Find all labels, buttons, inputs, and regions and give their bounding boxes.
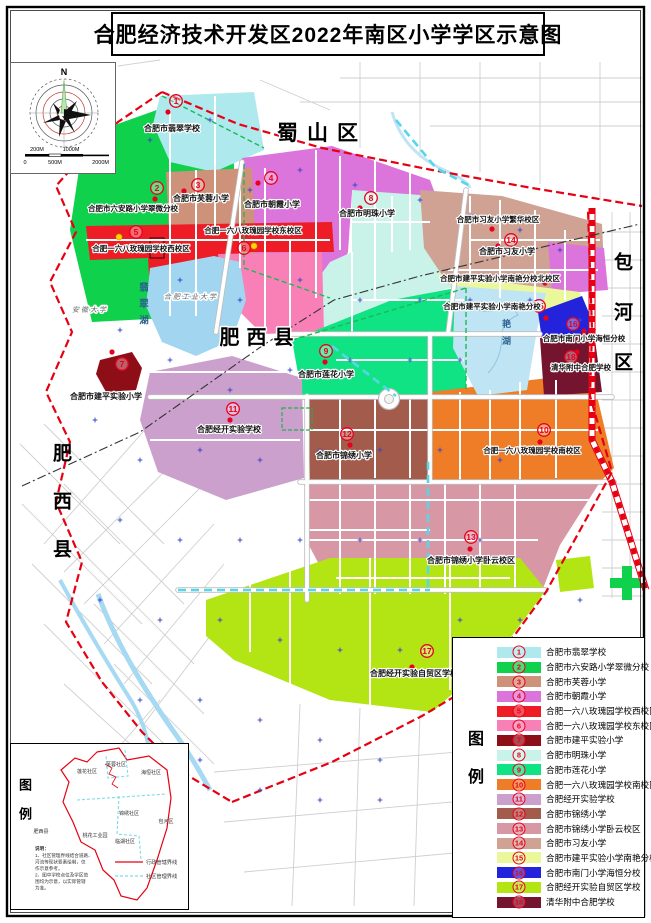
svg-text:6: 6 (242, 243, 247, 253)
legend-color-swatch: 12 (497, 808, 541, 819)
legend-item: 3合肥市芙蓉小学 (497, 674, 651, 689)
legend-color-swatch: 2 (497, 662, 541, 673)
legend-item: 4合肥市朝霞小学 (497, 689, 651, 704)
map-school-number-10: 10 (538, 424, 551, 437)
label-school-6: 合肥一六八玫瑰园学校东校区 (204, 225, 302, 235)
legend-item-number: 13 (513, 822, 526, 835)
road-marker (578, 598, 583, 603)
label-shushan-district: 蜀山区 (277, 122, 367, 145)
road-marker (93, 418, 98, 423)
legend-item-number: 6 (513, 719, 526, 732)
label-school-13: 合肥市锦绣小学卧云校区 (426, 555, 515, 565)
compass-rose: N 200M 1000M 0 500M 2000M (11, 63, 115, 173)
compass-box: N 200M 1000M 0 500M 2000M (10, 62, 116, 174)
map-school-number-8: 8 (365, 192, 378, 205)
legend-color-swatch: 18 (497, 897, 541, 908)
legend-color-swatch: 1 (497, 647, 541, 658)
school-dot-yellow (251, 243, 257, 249)
legend-item-number: 9 (513, 763, 526, 776)
label-school-15b: 合肥市建平实验小学南艳分校北校区 (440, 273, 560, 283)
map-school-number-13: 13 (465, 531, 478, 544)
legend-item: 14合肥市习友小学 (497, 836, 651, 851)
map-school-number-6: 6 (238, 242, 251, 255)
legend-item-number: 8 (513, 749, 526, 762)
map-page: 123456789101112131415161718 合肥市翡翠学校 合肥市六… (0, 0, 651, 923)
inset-label-community: 莲花社区 (77, 768, 97, 775)
svg-text:2: 2 (155, 183, 160, 193)
road-marker (138, 458, 143, 463)
inset-label-community: 临湖社区 (115, 838, 135, 845)
label-feicui-lake: 翡翠湖 (135, 282, 149, 332)
legend-item-number: 17 (513, 881, 526, 894)
label-hfut: 合肥工业大学 (164, 293, 218, 301)
legend-item-label: 合肥经开实验自贸区学校 (546, 881, 641, 893)
map-school-number-12: 12 (341, 428, 354, 441)
label-baohe-district-v: 包河区 (608, 252, 635, 402)
map-school-number-17: 17 (421, 645, 434, 658)
map-school-number-11: 11 (227, 403, 240, 416)
svg-text:18: 18 (566, 352, 576, 362)
road-marker (198, 758, 203, 763)
legend-color-swatch: 17 (497, 882, 541, 893)
green-cross-park (610, 578, 644, 588)
legend-item-label: 合肥一六八玫瑰园学校东校区 (546, 720, 651, 732)
svg-text:14: 14 (506, 235, 516, 245)
legend-item-label: 合肥市莲花小学 (546, 764, 606, 776)
inset-label-community: 海恒社区 (141, 769, 161, 776)
legend-item: 18清华附中合肥学校 (497, 895, 651, 910)
legend-item: 9合肥市莲花小学 (497, 763, 651, 778)
label-school-18: 清华附中合肥学校 (551, 362, 611, 372)
label-school-1: 合肥市翡翠学校 (143, 123, 201, 133)
inset-label-neighbor: 肥西县 (33, 829, 48, 835)
legend-color-swatch: 4 (497, 691, 541, 702)
legend-item: 2合肥市六安路小学翠微分校 (497, 660, 651, 675)
school-region-4b (548, 242, 608, 294)
legend-item: 5合肥一六八玫瑰园学校西校区 (497, 704, 651, 719)
svg-text:5: 5 (134, 227, 139, 237)
road-marker (318, 738, 323, 743)
legend-color-swatch: 7 (497, 735, 541, 746)
legend-item: 13合肥市锦绣小学卧云校区 (497, 821, 651, 836)
inset-map: 莲花社区 芙蓉社区 海恒社区 锦绣社区 临湖社区 桃花工业园 肥西县 包河区 说… (11, 744, 188, 909)
legend-header: 图例 (461, 730, 485, 806)
school-dot-yellow (116, 234, 122, 240)
inset-note-line: 1、社区管理界线结合道路、 (35, 852, 93, 859)
label-school-8: 合肥市明珠小学 (338, 208, 395, 218)
svg-text:8: 8 (369, 193, 374, 203)
inset-line-legend-label: 行政管辖界线 (146, 858, 177, 866)
road-marker (178, 538, 183, 543)
svg-text:16: 16 (568, 319, 578, 329)
road-marker (318, 798, 323, 803)
legend-color-swatch: 8 (497, 750, 541, 761)
road-marker (258, 718, 263, 723)
scale-label: 0 (23, 160, 26, 166)
label-school-9: 合肥市莲花小学 (297, 369, 354, 379)
legend-item: 10合肥一六八玫瑰园学校南校区 (497, 777, 651, 792)
map-school-number-5: 5 (130, 226, 143, 239)
legend-color-swatch: 16 (497, 867, 541, 878)
label-school-14: 合肥市习友小学 (478, 246, 535, 256)
svg-text:7: 7 (120, 359, 125, 369)
map-school-number-9: 9 (320, 345, 333, 358)
inset-line-legend-label: 社区管理界线 (146, 872, 177, 880)
map-title-box: 合肥经济技术开发区2022年南区小学学区示意图 (111, 12, 545, 56)
map-school-number-16: 16 (567, 318, 580, 331)
legend-panel: 图例 1合肥市翡翠学校2合肥市六安路小学翠微分校3合肥市芙蓉小学4合肥市朝霞小学… (452, 637, 645, 918)
legend-item: 8合肥市明珠小学 (497, 748, 651, 763)
legend-item-label: 合肥一六八玫瑰园学校西校区 (546, 705, 651, 717)
legend-item-number: 18 (513, 896, 526, 909)
legend-item-label: 合肥市翡翠学校 (546, 646, 606, 658)
road-marker (118, 518, 123, 523)
legend-item-number: 4 (513, 690, 526, 703)
legend-items: 1合肥市翡翠学校2合肥市六安路小学翠微分校3合肥市芙蓉小学4合肥市朝霞小学5合肥… (497, 645, 651, 909)
inset-note-line: 2、图中学校点位及学区范 (35, 872, 88, 879)
label-school-14b: 合肥市习友小学繁华校区 (457, 214, 540, 224)
legend-item-label: 合肥市锦绣小学 (546, 808, 606, 820)
legend-item-number: 14 (513, 837, 526, 850)
legend-item-number: 1 (513, 646, 526, 659)
road-marker (198, 698, 203, 703)
inset-label-neighbor: 包河区 (158, 818, 173, 825)
road-marker (118, 328, 123, 333)
legend-item-number: 5 (513, 705, 526, 718)
scale-bar: 200M 1000M 0 500M 2000M (23, 147, 109, 166)
label-school-3: 合肥市芙蓉小学 (172, 193, 229, 203)
legend-item-number: 7 (513, 734, 526, 747)
inset-header: 图例 (15, 778, 34, 836)
legend-color-swatch: 15 (497, 852, 541, 863)
legend-item-label: 合肥市建平实验小学南艳分校 (546, 852, 651, 864)
legend-item-label: 合肥一六八玫瑰园学校南校区 (546, 779, 651, 791)
legend-item: 1合肥市翡翠学校 (497, 645, 651, 660)
label-school-15: 合肥市建平实验小学南艳分校 (443, 301, 541, 311)
label-school-17: 合肥经开实验自贸区学校 (369, 668, 459, 678)
inset-note-line: 河流等现状要素绘制，仅 (35, 859, 86, 866)
map-school-number-1: 1 (170, 95, 183, 108)
road-marker (158, 618, 163, 623)
svg-text:11: 11 (229, 404, 238, 414)
legend-color-swatch: 5 (497, 706, 541, 717)
legend-color-swatch: 14 (497, 838, 541, 849)
scale-label: 200M (30, 147, 44, 153)
svg-text:12: 12 (342, 429, 352, 439)
label-school-5: 合肥一六八玫瑰园学校西校区 (92, 243, 190, 253)
inset-panel: 图例 莲花社区 芙蓉社区 海恒社区 锦绣社区 临湖社区 桃花工业园 肥西县 包河… (10, 743, 189, 910)
inset-notes-title: 说明： (35, 845, 49, 852)
legend-color-swatch: 10 (497, 779, 541, 790)
scale-label: 1000M (63, 147, 80, 153)
svg-text:10: 10 (539, 425, 549, 435)
map-school-number-7: 7 (116, 358, 129, 371)
page-title: 合肥经济技术开发区2022年南区小学学区示意图 (94, 19, 563, 49)
legend-item-number: 11 (513, 793, 526, 806)
road-marker (298, 538, 303, 543)
legend-color-swatch: 3 (497, 676, 541, 687)
inset-notes: 说明： 1、社区管理界线结合道路、 河流等现状要素绘制，仅 作示意参考。 2、图… (35, 845, 93, 892)
legend-item-label: 合肥市六安路小学翠微分校 (546, 661, 649, 673)
legend-item: 6合肥一六八玫瑰园学校东校区 (497, 718, 651, 733)
scale-label: 2000M (92, 160, 109, 166)
svg-text:1: 1 (174, 96, 179, 106)
legend-color-swatch: 6 (497, 720, 541, 731)
legend-item-number: 3 (513, 675, 526, 688)
legend-item-number: 10 (513, 778, 526, 791)
legend-item-number: 2 (513, 661, 526, 674)
label-anhui-university: 安徽大学 (72, 306, 108, 314)
map-school-number-14: 14 (505, 234, 518, 247)
scale-label: 500M (48, 160, 62, 166)
legend-color-swatch: 11 (497, 794, 541, 805)
label-school-11: 合肥经开实验学校 (196, 424, 262, 434)
map-school-number-4: 4 (265, 172, 278, 185)
legend-item-number: 16 (513, 866, 526, 879)
legend-item-label: 合肥市锦绣小学卧云校区 (546, 823, 641, 835)
legend-item: 17合肥经开实验自贸区学校 (497, 880, 651, 895)
legend-color-swatch: 9 (497, 764, 541, 775)
legend-item-label: 合肥市习友小学 (546, 837, 606, 849)
svg-text:9: 9 (324, 346, 329, 356)
road-marker (138, 698, 143, 703)
legend-item: 11合肥经开实验学校 (497, 792, 651, 807)
svg-text:4: 4 (269, 173, 274, 183)
legend-item-label: 合肥市建平实验小学 (546, 734, 623, 746)
legend-item-number: 12 (513, 807, 526, 820)
roundabout (379, 389, 400, 410)
label-feixi-county-v: 肥西县 (47, 443, 74, 587)
legend-item: 12合肥市锦绣小学 (497, 807, 651, 822)
label-school-7: 合肥市建平实验小学 (69, 391, 142, 401)
road-marker (378, 798, 383, 803)
compass-north-label: N (61, 67, 68, 77)
legend-item-label: 合肥市南门小学海恒分校 (546, 867, 641, 879)
legend-item: 15合肥市建平实验小学南艳分校 (497, 851, 651, 866)
label-school-10: 合肥一六八玫瑰园学校南校区 (483, 445, 581, 455)
map-school-number-2: 2 (151, 182, 164, 195)
legend-item-label: 合肥经开实验学校 (546, 793, 615, 805)
svg-text:17: 17 (422, 646, 432, 656)
legend-item: 7合肥市建平实验小学 (497, 733, 651, 748)
legend-item-label: 合肥市芙蓉小学 (546, 676, 606, 688)
svg-text:3: 3 (196, 180, 201, 190)
label-school-4: 合肥市朝霞小学 (243, 199, 300, 209)
legend-item-label: 合肥市明珠小学 (546, 749, 606, 761)
inset-label-community: 锦绣社区 (119, 810, 139, 817)
legend-item-number: 15 (513, 851, 526, 864)
label-school-2: 合肥市六安路小学翠微分校 (88, 203, 178, 213)
inset-note-line: 作示意参考。 (35, 865, 63, 872)
legend-item-label: 合肥市朝霞小学 (546, 690, 606, 702)
map-school-number-18: 18 (565, 351, 578, 364)
legend-color-swatch: 13 (497, 823, 541, 834)
label-feixi-county-h: 肥西县 (220, 326, 301, 349)
legend-item: 16合肥市南门小学海恒分校 (497, 865, 651, 880)
inset-note-line: 围均为示意，以实际管辖 (35, 878, 86, 885)
inset-note-line: 为准。 (35, 885, 49, 892)
svg-text:13: 13 (466, 532, 476, 542)
inset-label-community: 桃花工业园 (82, 832, 107, 839)
road-marker (168, 358, 173, 363)
label-nanyan-lake: 艳湖 (500, 319, 513, 353)
label-school-12: 合肥市锦绣小学 (315, 450, 372, 460)
legend-item-label: 清华附中合肥学校 (546, 896, 615, 908)
road-marker (238, 538, 243, 543)
north-needle (61, 81, 67, 113)
inset-label-community: 芙蓉社区 (106, 761, 126, 768)
map-school-number-3: 3 (192, 179, 205, 192)
